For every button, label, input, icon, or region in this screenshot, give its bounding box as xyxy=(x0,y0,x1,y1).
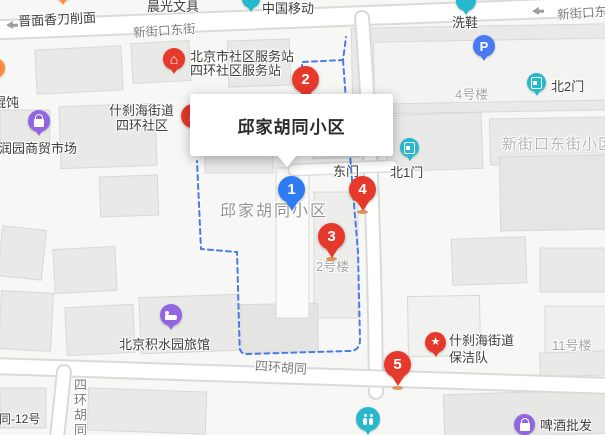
poi-label-wonton: 馄饨 xyxy=(0,92,19,111)
shopping-bag-icon xyxy=(34,119,44,127)
poi-label-hotel: 北京积水园旅馆 xyxy=(119,334,210,353)
building-label-4: 4号楼 xyxy=(455,84,488,103)
map-marker-2[interactable]: 2 xyxy=(292,66,319,93)
map-marker-3[interactable]: 3 xyxy=(318,223,345,250)
house-icon: ⌂ xyxy=(170,52,178,66)
north-gate2-icon[interactable] xyxy=(527,73,546,92)
door-icon xyxy=(404,142,415,154)
map-marker-1[interactable]: 1 xyxy=(278,176,305,203)
parking-letter: P xyxy=(480,40,489,53)
poi-label-noodle-shop: 晋面香刀削面 xyxy=(18,7,97,30)
hotel-icon[interactable] xyxy=(160,304,182,326)
market-icon[interactable] xyxy=(28,110,50,132)
star-icon: ★ xyxy=(431,337,441,348)
restroom-icon[interactable] xyxy=(356,407,380,431)
door-icon xyxy=(531,77,542,89)
shopping-bag-icon xyxy=(520,423,530,431)
info-popup[interactable]: 邱家胡同小区 xyxy=(190,94,393,156)
area-label-qiujia-hutong: 邱家胡同小区 xyxy=(220,197,328,221)
poi-label-market: 福润园商贸市场 xyxy=(0,138,77,157)
poi-label-service-station-line2: 四环社区服务站 xyxy=(190,60,281,79)
poi-label-china-mobile: 中国移动 xyxy=(262,0,314,17)
gate-label-north2: 北2门 xyxy=(551,76,584,95)
popup-title: 邱家胡同小区 xyxy=(190,94,393,156)
poi-label-cleaning-team-line2: 保洁队 xyxy=(449,347,488,366)
address-label-sihuan-hutong-12: 四环胡同-12号 xyxy=(0,410,40,427)
cleaning-team-icon[interactable]: ★ xyxy=(425,332,446,353)
map-marker-4[interactable]: 4 xyxy=(349,176,376,203)
marker-number: 2 xyxy=(301,71,309,88)
area-label-xinjiekou-east-community: 新街口东街小区 xyxy=(502,133,605,154)
poi-label-beer-wholesale: 啤酒批发 xyxy=(540,415,592,434)
parking-icon[interactable]: P xyxy=(473,35,495,57)
marker-number: 1 xyxy=(287,181,295,198)
marker-number: 3 xyxy=(327,228,335,245)
street-label-xinjiekou-east-right: 新街口东街 xyxy=(556,0,605,23)
restroom-persons-icon xyxy=(363,414,373,425)
popup-pointer xyxy=(277,155,297,167)
street-label-sihuan-hutong-south: 四环胡同 xyxy=(70,378,89,435)
north-gate1-icon[interactable] xyxy=(400,138,419,157)
street-label-sihuan-hutong: 四环胡同 xyxy=(254,355,307,378)
beer-wholesale-icon[interactable] xyxy=(514,414,535,435)
poi-label-shichahai-line2: 四环社区 xyxy=(116,115,168,134)
building-label-11: 11号楼 xyxy=(552,335,592,354)
road-direction-arrow xyxy=(2,21,19,30)
marker-number: 4 xyxy=(358,181,366,198)
map-marker-5[interactable]: 5 xyxy=(384,351,411,378)
service-station-icon[interactable]: ⌂ xyxy=(163,48,185,70)
bed-icon xyxy=(165,315,177,320)
poi-label-stationery: 晨光文具 xyxy=(147,0,199,15)
map-canvas[interactable]: 晋面香刀削面 晨光文具 中国移动 新街口东街 新街口东街 洗鞋 北京市社区服务站… xyxy=(0,0,605,435)
marker-number: 5 xyxy=(393,356,401,373)
road-direction-arrow xyxy=(528,7,545,16)
